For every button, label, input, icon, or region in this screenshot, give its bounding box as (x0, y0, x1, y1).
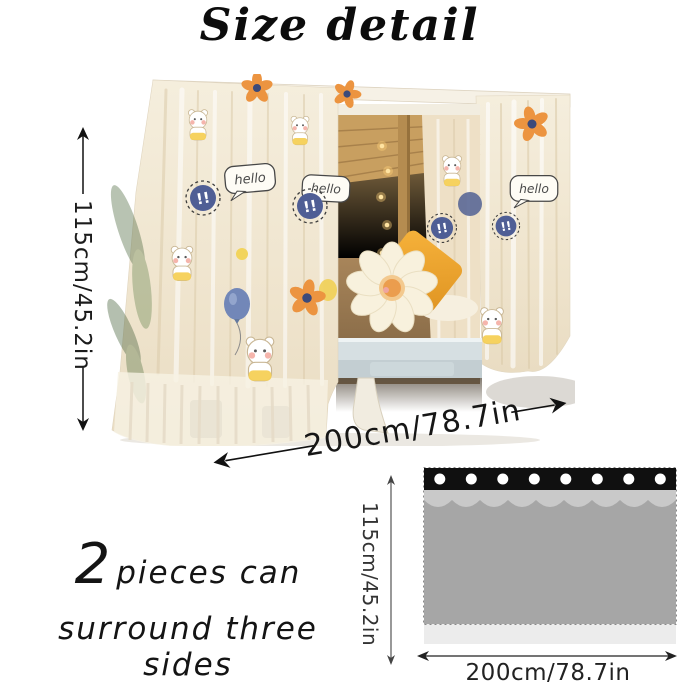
bear-sticker (442, 156, 461, 186)
schematic-height-arrow (381, 474, 401, 666)
bear-sticker (246, 337, 274, 381)
schematic-valance (424, 490, 676, 507)
caption-line1-text: pieces can (116, 555, 301, 591)
bear-sticker (171, 246, 193, 280)
caption: 2pieces can surround three sides (14, 532, 362, 683)
size-detail-figure: Size detail (0, 0, 679, 685)
bear-sticker (291, 116, 309, 145)
left-curtain (101, 74, 366, 446)
schematic-width-label: 200cm/78.7in (420, 660, 676, 685)
right-curtain (476, 95, 575, 408)
caption-line1: 2pieces can (14, 532, 362, 597)
bed-height-label: 115cm/45.2in (67, 200, 97, 366)
bed-photo: !! hello (70, 74, 575, 446)
schematic-band (424, 468, 676, 490)
bear-sticker (481, 308, 504, 344)
bed-width-label: 200cm/78.7in (302, 393, 524, 464)
caption-count: 2 (75, 532, 111, 597)
yellow-dot (236, 248, 248, 260)
schematic-hem (424, 624, 676, 644)
inner-rail (336, 104, 480, 115)
bear-sticker (188, 110, 207, 140)
curtain-schematic (422, 466, 678, 646)
width-arrow: 200cm/78.7in (205, 392, 573, 474)
bed-opening (336, 104, 482, 433)
caption-line2: surround three sides (14, 611, 362, 683)
schematic-height-label: 115cm/45.2in (357, 502, 383, 642)
page-title: Size detail (0, 0, 679, 51)
